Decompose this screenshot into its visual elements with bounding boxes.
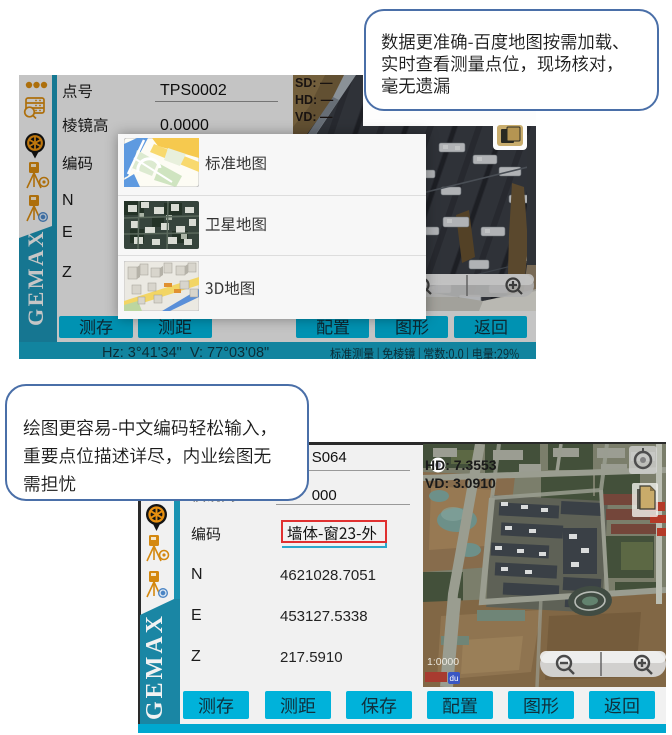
svg-text:HD: 7.3553: HD: 7.3553 <box>425 457 497 473</box>
svg-text:1:0000: 1:0000 <box>427 656 459 668</box>
svg-text:du: du <box>450 674 459 683</box>
svg-text:VD: 3.0910: VD: 3.0910 <box>425 475 496 491</box>
